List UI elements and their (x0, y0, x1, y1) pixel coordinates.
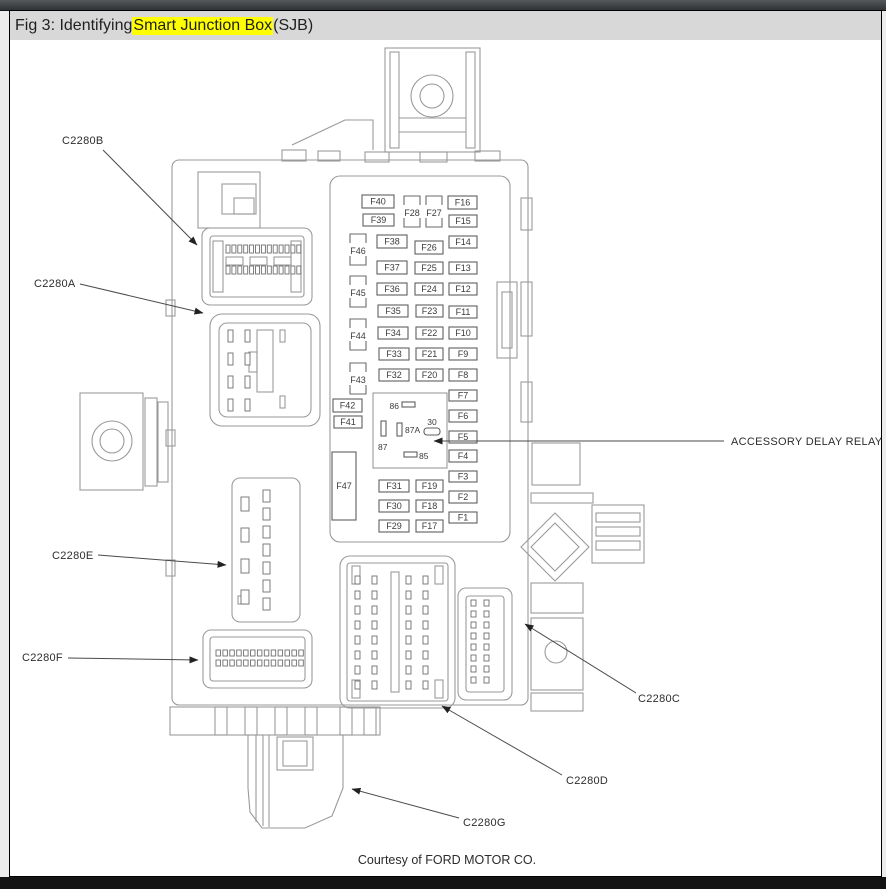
fuse-f39: F39 (363, 214, 394, 226)
svg-text:F10: F10 (455, 328, 471, 338)
svg-text:F11: F11 (456, 307, 471, 317)
svg-text:F29: F29 (386, 521, 402, 531)
svg-text:C2280C: C2280C (638, 693, 680, 705)
connector-c2280f (203, 630, 312, 688)
svg-text:F36: F36 (384, 284, 400, 294)
relay-pin-87a: 87A (405, 425, 420, 435)
svg-text:F45: F45 (350, 288, 366, 298)
figure-title-bar: Fig 3: Identifying Smart Junction Box (S… (10, 11, 881, 40)
svg-text:C2280A: C2280A (34, 278, 76, 290)
svg-text:F43: F43 (350, 375, 366, 385)
fuse-f12: F12 (449, 283, 477, 295)
svg-text:F47: F47 (336, 481, 352, 491)
svg-text:F40: F40 (370, 197, 386, 207)
figure-frame: Fig 3: Identifying Smart Junction Box (S… (9, 10, 882, 877)
fuse-f18: F18 (416, 500, 443, 512)
svg-text:F16: F16 (455, 198, 471, 208)
fuse-f1: F1 (449, 512, 477, 523)
fuse-f44: F44 (350, 319, 366, 350)
fuse-f26: F26 (415, 241, 443, 254)
fuse-f9: F9 (449, 348, 477, 360)
fuse-f42: F42 (333, 399, 362, 412)
svg-text:ACCESSORY DELAY RELAY: ACCESSORY DELAY RELAY (731, 436, 881, 448)
connector-c2280a (210, 314, 320, 426)
relay-pin-30: 30 (427, 417, 437, 427)
fuse-f23: F23 (416, 305, 443, 317)
fuse-f16: F16 (448, 196, 477, 209)
fuse-f2: F2 (449, 491, 477, 503)
svg-text:F4: F4 (458, 451, 469, 461)
svg-text:F3: F3 (458, 472, 469, 482)
callout-c2280d: C2280D (442, 706, 608, 787)
callout-c2280e: C2280E (52, 550, 226, 565)
svg-text:F17: F17 (422, 521, 438, 531)
svg-text:F6: F6 (458, 411, 469, 421)
svg-text:F35: F35 (385, 306, 401, 316)
top-mount-bracket (385, 48, 480, 152)
fuse-f36: F36 (377, 283, 407, 295)
fuse-f31: F31 (379, 480, 409, 492)
svg-text:F24: F24 (421, 284, 437, 294)
fuse-f46: F46 (350, 234, 366, 265)
relay-pin-86: 86 (390, 401, 400, 411)
svg-text:F21: F21 (422, 349, 438, 359)
svg-text:F13: F13 (455, 263, 471, 273)
fuse-f37: F37 (377, 261, 407, 274)
svg-text:F23: F23 (422, 306, 438, 316)
fuse-f24: F24 (415, 283, 443, 295)
window-bottom-bar (0, 877, 886, 889)
fuse-f8: F8 (449, 369, 477, 381)
svg-text:F28: F28 (404, 208, 420, 218)
svg-text:F41: F41 (340, 417, 356, 427)
svg-text:F44: F44 (350, 331, 366, 341)
callout-c2280a: C2280A (34, 278, 203, 313)
svg-text:C2280E: C2280E (52, 550, 94, 562)
fuse-f11: F11 (449, 306, 477, 318)
svg-text:F18: F18 (422, 501, 438, 511)
figure-title-highlight: Smart Junction Box (132, 17, 273, 35)
sjb-diagram-svg: 868787A3085 F40F39F38F37F36F35F34F33F32F… (10, 40, 881, 876)
fuse-f15: F15 (449, 215, 477, 227)
fuse-f40: F40 (362, 195, 394, 208)
svg-text:F46: F46 (350, 246, 366, 256)
fuse-f6: F6 (449, 410, 477, 422)
fuse-f20: F20 (416, 369, 443, 381)
courtesy-text: Courtesy of FORD MOTOR CO. (358, 853, 536, 867)
svg-text:F25: F25 (421, 263, 437, 273)
svg-text:F27: F27 (426, 208, 442, 218)
svg-text:F34: F34 (385, 328, 401, 338)
svg-text:F8: F8 (458, 370, 469, 380)
svg-text:F12: F12 (455, 284, 471, 294)
fuse-f29: F29 (379, 520, 409, 532)
svg-text:F19: F19 (422, 481, 438, 491)
callout-accessory-delay-relay: ACCESSORY DELAY RELAY (434, 436, 881, 448)
fuse-f19: F19 (416, 480, 443, 492)
fuse-f45: F45 (350, 276, 366, 307)
diagram-canvas: 868787A3085 F40F39F38F37F36F35F34F33F32F… (10, 40, 881, 876)
fuse-f47: F47 (332, 452, 356, 520)
svg-text:F42: F42 (340, 401, 356, 411)
svg-text:F9: F9 (458, 349, 469, 359)
fuse-f7: F7 (449, 390, 477, 401)
svg-text:F33: F33 (386, 349, 402, 359)
fuse-f43: F43 (350, 363, 366, 394)
figure-title-prefix: Fig 3: Identifying (15, 17, 132, 35)
svg-text:F32: F32 (386, 370, 402, 380)
fuse-f38: F38 (377, 235, 407, 248)
fuse-f33: F33 (379, 348, 409, 360)
callout-c2280b: C2280B (62, 135, 197, 245)
fuse-f28: F28 (404, 196, 420, 227)
left-mount-bracket (80, 393, 168, 490)
svg-text:F31: F31 (386, 481, 402, 491)
fuse-f10: F10 (449, 327, 477, 339)
callout-c2280g: C2280G (352, 789, 506, 829)
fuse-f32: F32 (379, 369, 409, 381)
fuse-f13: F13 (449, 262, 477, 274)
fuse-f41: F41 (334, 416, 362, 428)
svg-text:F37: F37 (384, 263, 400, 273)
right-side-hardware (521, 443, 644, 711)
svg-text:F20: F20 (422, 370, 438, 380)
svg-text:F7: F7 (458, 391, 469, 401)
svg-text:C2280B: C2280B (62, 135, 104, 147)
svg-text:F39: F39 (371, 215, 387, 225)
figure-title-suffix: (SJB) (273, 17, 313, 35)
svg-text:F22: F22 (422, 328, 438, 338)
svg-text:F30: F30 (386, 501, 402, 511)
relay-pin-85: 85 (419, 451, 429, 461)
fuse-f34: F34 (378, 327, 408, 339)
svg-text:F14: F14 (455, 237, 471, 247)
fuse-f30: F30 (379, 500, 409, 512)
fuse-f22: F22 (416, 327, 443, 339)
top-left-mount (198, 172, 260, 228)
relay-pin-87: 87 (378, 442, 388, 452)
fuse-f21: F21 (416, 348, 443, 360)
svg-text:F1: F1 (458, 513, 469, 523)
svg-text:C2280D: C2280D (566, 775, 608, 787)
svg-text:C2280G: C2280G (463, 817, 506, 829)
fuse-f27: F27 (426, 196, 442, 227)
svg-text:F2: F2 (458, 492, 469, 502)
fuse-f35: F35 (378, 305, 408, 317)
svg-text:F26: F26 (421, 243, 437, 253)
fuse-f17: F17 (416, 520, 443, 532)
svg-text:F38: F38 (384, 237, 400, 247)
svg-text:C2280F: C2280F (22, 652, 63, 664)
fuse-f3: F3 (449, 471, 477, 482)
svg-text:F15: F15 (455, 216, 471, 226)
fuse-f14: F14 (449, 236, 477, 248)
fuse-f4: F4 (449, 450, 477, 462)
bottom-rail (170, 707, 380, 735)
fuse-f25: F25 (415, 262, 443, 274)
screenshot-page: Fig 3: Identifying Smart Junction Box (S… (0, 0, 886, 889)
relay-box: 868787A3085 (373, 393, 447, 468)
connector-c2280g (248, 735, 343, 828)
